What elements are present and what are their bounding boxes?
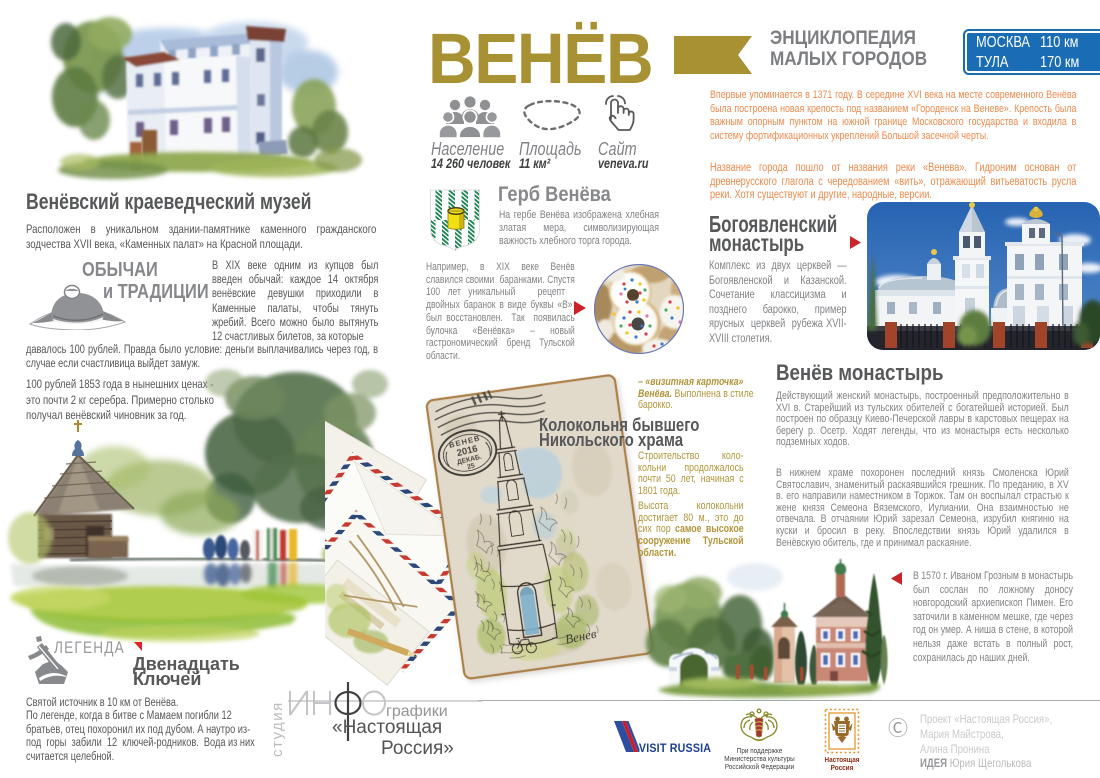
svg-text:VISIT RUSSIA: VISIT RUSSIA: [639, 743, 711, 755]
svg-text:студия: студия: [269, 701, 286, 757]
svg-text:«Настоящая: «Настоящая: [332, 717, 442, 738]
svg-text:Россия»: Россия»: [381, 738, 454, 759]
